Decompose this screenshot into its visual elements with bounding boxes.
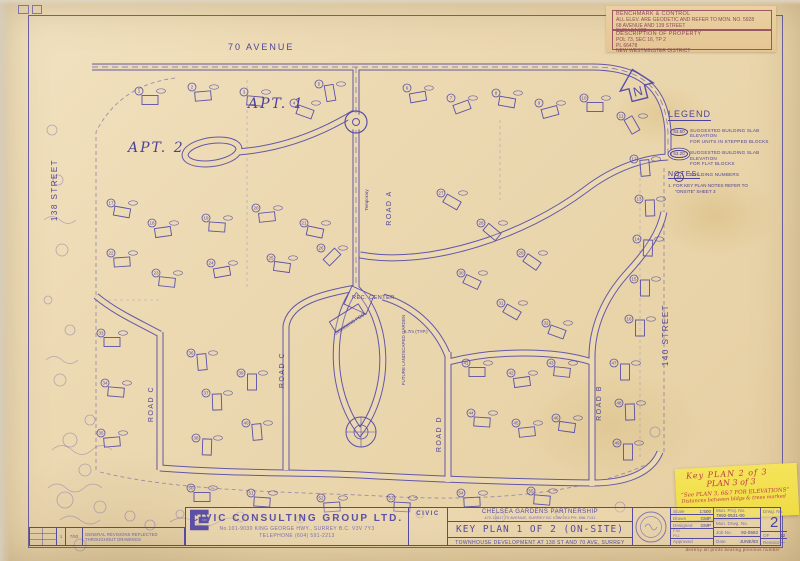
- slab-elevation-oval: [519, 301, 528, 305]
- drawn-label: Drawn: [673, 516, 686, 521]
- of-label: OF: [763, 533, 769, 538]
- building-footprint: [259, 212, 276, 223]
- building-number: 7: [450, 96, 453, 101]
- tree-symbol: [125, 511, 135, 521]
- revision-date: 7/93: [66, 528, 83, 545]
- slab-elevation-oval: [499, 221, 508, 225]
- slab-elevation-oval: [484, 361, 493, 365]
- sheet-title: KEY PLAN 1 OF 2 (ON-SITE): [448, 522, 632, 538]
- approval-seal-cell: [633, 508, 671, 545]
- garden-circle: [346, 417, 376, 447]
- building-footprint: [113, 206, 130, 218]
- slab-elevation-oval: [534, 421, 543, 425]
- building-footprint: [202, 439, 212, 455]
- slab-elevation-oval: [529, 371, 538, 375]
- building-footprint: [142, 96, 158, 105]
- building-number: 28: [478, 221, 484, 226]
- building-footprint: [254, 497, 271, 507]
- building-footprint: [108, 387, 125, 397]
- legend-text: FOR UNITS IN STEPPED BLOCKS: [690, 139, 786, 144]
- pu-label: P.U.: [673, 533, 680, 538]
- building-number: 52: [318, 496, 324, 501]
- building-footprint: [195, 91, 212, 101]
- building-footprint: [213, 266, 230, 278]
- scale-value: 1:500: [700, 509, 712, 514]
- legend-item: 53.50 SUGGESTED BUILDING SLAB ELEVATIONF…: [668, 128, 786, 144]
- tree-symbol: [79, 464, 91, 476]
- slab-elevation-oval: [259, 371, 268, 375]
- building-footprint: [306, 226, 324, 238]
- slab-elevation-oval: [129, 201, 138, 205]
- building-number: 46: [553, 416, 559, 421]
- apt2-label: APT. 2: [126, 140, 185, 156]
- slab-elevation-oval: [119, 431, 128, 435]
- building-footprint: [197, 354, 207, 371]
- approval-seal: [633, 508, 670, 545]
- consultant-phone: TELEPHONE (604) 591-2213: [186, 533, 408, 539]
- building-number: 27: [438, 191, 444, 196]
- building-footprint: [159, 277, 176, 288]
- slab-elevation-oval: [157, 89, 166, 93]
- job-value: 92-0592: [741, 530, 758, 535]
- date-label: Date: [716, 539, 726, 544]
- avenue-label: 70 AVENUE: [228, 42, 294, 52]
- building-number: 40: [243, 421, 249, 426]
- benchmark-sticky-note: BENCHMARK & CONTROL ALL ELEV. ARE GEODET…: [606, 6, 776, 52]
- building-footprint: [248, 374, 257, 390]
- building-number: 45: [513, 421, 519, 426]
- building-footprint: [104, 338, 120, 347]
- slab-elevation-oval: [262, 90, 271, 94]
- slab-elevation-oval: [564, 321, 573, 325]
- building-number: 49: [614, 441, 620, 446]
- road-network: [92, 67, 668, 486]
- traffic-circle: [345, 111, 367, 133]
- building-number: 42: [508, 371, 514, 376]
- slab-elevation-oval: [557, 101, 566, 105]
- slab-elevation-oval: [170, 221, 179, 225]
- slab-elevation-oval: [274, 206, 283, 210]
- building-footprint: [464, 497, 480, 507]
- scanned-drawing-sheet: 1234567891011121314151617181920212223242…: [0, 0, 800, 561]
- building-number: 14: [634, 237, 640, 242]
- slab-elevation-oval: [214, 436, 223, 440]
- building-footprint: [154, 226, 171, 237]
- building-footprint: [621, 364, 630, 380]
- revision-grid: [30, 528, 57, 545]
- building-number: 54: [458, 491, 464, 496]
- slab-elevation-oval: [229, 261, 238, 265]
- building-footprint: [252, 424, 262, 441]
- title-block: CIVIC CONSULTING GROUP LTD. No.101-9030 …: [185, 507, 781, 546]
- consultant-block: CIVIC CONSULTING GROUP LTD. No.101-9030 …: [186, 508, 409, 545]
- building-number: 34: [102, 381, 108, 386]
- building-footprint: [273, 261, 290, 272]
- slab-elevation-oval: [574, 416, 583, 420]
- building-number: 22: [108, 251, 114, 256]
- building-number: 55: [528, 489, 534, 494]
- slab-elevation-oval: [479, 491, 488, 495]
- legend-text: SUGGESTED BUILDING SLAB ELEVATION: [690, 150, 786, 161]
- building-footprint: [640, 160, 650, 177]
- building-footprint: [324, 84, 336, 101]
- building-number: 33: [98, 331, 104, 336]
- flat-slab-symbol: 53.20: [670, 150, 687, 158]
- building-footprint: [469, 368, 485, 377]
- revision-strip: 1 7/93 GENERAL REVISIONS REFLECTED THROU…: [29, 527, 185, 546]
- mun-proj-value: 7892-0531-00: [716, 513, 745, 518]
- building-footprint: [498, 96, 515, 108]
- slab-elevation-oval: [602, 96, 611, 100]
- building-footprint: [209, 222, 226, 232]
- building-footprint: [409, 91, 426, 103]
- building-number: 41: [463, 361, 469, 366]
- designed-value: GMP: [701, 523, 711, 528]
- tree-symbol: [94, 501, 106, 513]
- legend-text: SUGGESTED BUILDING SLAB ELEVATION: [690, 128, 786, 139]
- civic-logo-text: CIVIC: [409, 511, 447, 517]
- date-value: JUNE/93: [740, 539, 758, 544]
- building-number: 1: [138, 89, 141, 94]
- tree-symbol: [176, 510, 184, 518]
- slab-elevation-oval: [210, 85, 219, 89]
- slab-elevation-oval: [312, 101, 321, 105]
- road-network-casing: [92, 67, 668, 486]
- building-footprint: [194, 493, 210, 502]
- revision-value: —: [781, 540, 786, 545]
- building-footprint: [513, 376, 530, 387]
- revision-text: GENERAL REVISIONS REFLECTED THROUGHOUT D…: [83, 528, 184, 545]
- slab-elevation-oval: [224, 216, 233, 220]
- civic-logo: CIVIC: [409, 508, 448, 545]
- building-number: 31: [498, 301, 504, 306]
- drawn-value: GMP: [701, 516, 711, 521]
- building-number: 23: [153, 271, 159, 276]
- building-number: 15: [631, 277, 637, 282]
- building-number: 6: [406, 86, 409, 91]
- legend-title: LEGEND: [668, 109, 711, 121]
- slab-elevation-oval: [635, 441, 644, 445]
- building-number: 24: [208, 261, 214, 266]
- building-number: 44: [468, 411, 474, 416]
- drawing-number: 2: [761, 514, 787, 532]
- client-address: #72-13817 70 AVENUE, SURREY BC V3W 2K3 P…: [448, 515, 632, 520]
- building-footprint: [323, 248, 341, 266]
- tree-symbol: [47, 125, 57, 135]
- slab-elevation-oval: [339, 246, 348, 250]
- building-number: 51: [248, 491, 254, 496]
- building-footprint: [523, 254, 541, 271]
- building-number: 39: [238, 371, 244, 376]
- revision-label: Revision: [763, 540, 781, 545]
- building-number: 47: [611, 361, 617, 366]
- road-c-lower-label: ROAD C: [148, 386, 155, 422]
- slab-elevation-oval: [425, 86, 434, 90]
- building-footprint: [453, 100, 471, 114]
- building-number: 38: [193, 436, 199, 441]
- building-number: 50: [188, 486, 194, 491]
- building-number: 18: [149, 221, 155, 226]
- building-number: 12: [631, 157, 637, 162]
- future-garden-label: FUTURE LANDSCAPED GARDEN: [401, 315, 406, 386]
- building-footprint: [474, 417, 491, 427]
- building-number: 21: [301, 221, 307, 226]
- building-number: 35: [98, 431, 104, 436]
- building-number: 25: [268, 256, 274, 261]
- benchmark-box: BENCHMARK & CONTROL ALL ELEV. ARE GEODET…: [612, 10, 772, 30]
- slab-elevation-oval: [639, 114, 648, 118]
- apt1-label: APT. 1: [246, 96, 305, 112]
- tree-symbol: [650, 427, 660, 437]
- building-number: 8: [495, 91, 498, 96]
- building-number: 43: [548, 361, 554, 366]
- building-footprint: [548, 325, 566, 339]
- building-number: 3: [243, 90, 246, 95]
- road-d-label: ROAD D: [436, 416, 443, 452]
- slab-elevation-oval: [489, 411, 498, 415]
- vegetation-scribbles: [44, 125, 660, 551]
- building-footprint: [645, 200, 655, 216]
- building-number: 10: [581, 96, 587, 101]
- job-label: Job No.: [716, 530, 732, 535]
- tree-symbol: [57, 492, 73, 508]
- building-footprint: [104, 437, 121, 447]
- slab-elevation-oval: [269, 491, 278, 495]
- slab-elevation-oval: [119, 331, 128, 335]
- street-left-label: 138 STREET: [50, 159, 59, 221]
- building-footprint: [636, 320, 645, 336]
- slab-elevation-oval: [514, 91, 523, 95]
- road-b-label: ROAD B: [596, 385, 603, 421]
- rec-center-label: REC. CENTER: [352, 295, 395, 301]
- slab-elevation-oval: [264, 421, 273, 425]
- slab-elevation-oval: [469, 96, 478, 100]
- civic-logo-icon: [186, 508, 212, 532]
- road-a-label: ROAD A: [386, 190, 393, 225]
- slab-elevation-oval: [459, 191, 468, 195]
- building-number: 13: [636, 197, 642, 202]
- building-footprint: [463, 275, 481, 290]
- revision-number: 1: [57, 528, 66, 545]
- north-label: N: [631, 83, 644, 100]
- slab-elevation-oval: [174, 271, 183, 275]
- slab-elevation-oval: [129, 251, 138, 255]
- notes: NOTES: 1. FOR KEY PLAN NOTES REFER TO “O…: [668, 163, 788, 194]
- building-footprint: [643, 240, 653, 256]
- slab-elevation-oval: [632, 361, 641, 365]
- approved-label: Approved: [673, 539, 693, 544]
- slab-elevation-oval: [209, 351, 218, 355]
- scale-label: Scale: [673, 509, 685, 514]
- mun-drwg-label: Mun. Drwg. No.: [716, 521, 748, 526]
- building-footprint: [519, 427, 536, 438]
- building-number: 26: [318, 246, 324, 251]
- slab-elevation-oval: [569, 361, 578, 365]
- temporary-label: Temporary: [364, 189, 369, 211]
- stepped-slab-symbol: 53.50: [670, 128, 687, 136]
- building-number: 20: [253, 206, 259, 211]
- tree-symbol: [63, 433, 77, 447]
- sheet-subtitle: TOWNHOUSE DEVELOPMENT AT 138 ST AND 70 A…: [448, 538, 632, 546]
- designed-label: Designed: [673, 523, 692, 528]
- building-number: 53: [388, 496, 394, 501]
- slab-elevation-oval: [647, 317, 656, 321]
- consultant-name: CIVIC CONSULTING GROUP LTD.: [186, 513, 408, 524]
- building-number: 17: [108, 201, 114, 206]
- drwg-no-label: Drwg. No.: [763, 509, 783, 514]
- of-value: 12: [780, 533, 785, 538]
- building-footprint: [554, 367, 571, 378]
- building-footprint: [641, 280, 650, 296]
- slab-elevation-oval: [339, 496, 348, 500]
- building-number: 5: [318, 82, 321, 87]
- slab-elevation-oval: [637, 401, 646, 405]
- street-right-label: 140 STREET: [661, 304, 670, 366]
- building-footprint: [558, 421, 575, 432]
- tree-symbol: [85, 415, 95, 425]
- typ-dimension-note: 6.7m (TYP.): [404, 329, 428, 334]
- building-number: 9: [538, 101, 541, 106]
- building-number: 16: [626, 317, 632, 322]
- tree-symbol: [65, 325, 75, 335]
- reprographic-footnote: destroy all prints bearing previous numb…: [640, 547, 780, 552]
- building-number: 36: [188, 351, 194, 356]
- building-number: 37: [203, 391, 209, 396]
- building-footprint: [114, 257, 131, 267]
- tree-symbol: [56, 244, 68, 256]
- slab-elevation-oval: [539, 251, 548, 255]
- property-description-box: DESCRIPTION OF PROPERTY POL 73, SEC 16, …: [612, 30, 772, 50]
- slab-elevation-oval: [123, 381, 132, 385]
- building-number: 30: [458, 271, 464, 276]
- slab-elevation-oval: [224, 391, 233, 395]
- slab-elevation-oval: [652, 277, 661, 281]
- road-c-upper-label: ROAD C: [279, 352, 286, 388]
- building-footprint: [212, 394, 222, 410]
- slab-elevation-oval: [337, 82, 346, 86]
- property-line: NEW WESTMINSTER DISTRICT: [616, 49, 768, 55]
- building-number: 19: [203, 216, 209, 221]
- slab-elevation-oval: [479, 271, 488, 275]
- building-footprint: [625, 404, 635, 420]
- notes-title: NOTES:: [668, 171, 700, 179]
- building-footprint: [624, 116, 640, 134]
- building-footprint: [503, 304, 521, 320]
- building-footprint: [443, 194, 461, 210]
- note-line: “ONSITE” SHEET 3: [675, 189, 788, 195]
- project-block: CHELSEA GARDENS PARTNERSHIP #72-13817 70…: [448, 508, 633, 545]
- building-footprint: [624, 444, 633, 460]
- slab-elevation-oval: [322, 221, 331, 225]
- building-footprint: [587, 103, 603, 112]
- building-number: 29: [518, 251, 524, 256]
- building-number: 48: [616, 401, 622, 406]
- building-number: 11: [619, 114, 624, 119]
- building-number: 2: [191, 85, 194, 90]
- building-footprint: [541, 106, 559, 119]
- slab-elevation-oval: [289, 256, 298, 260]
- building-number: 32: [543, 321, 549, 326]
- consultant-address: No.101-9030 KING GEORGE HWY., SURREY B.C…: [186, 526, 408, 532]
- tree-symbol: [54, 374, 66, 386]
- tree-symbol: [44, 296, 52, 304]
- fields-grid: Scale1:500 DrawnGMP DesignedGMP F.W.P.U.…: [671, 508, 787, 545]
- building-footprint: [534, 495, 551, 505]
